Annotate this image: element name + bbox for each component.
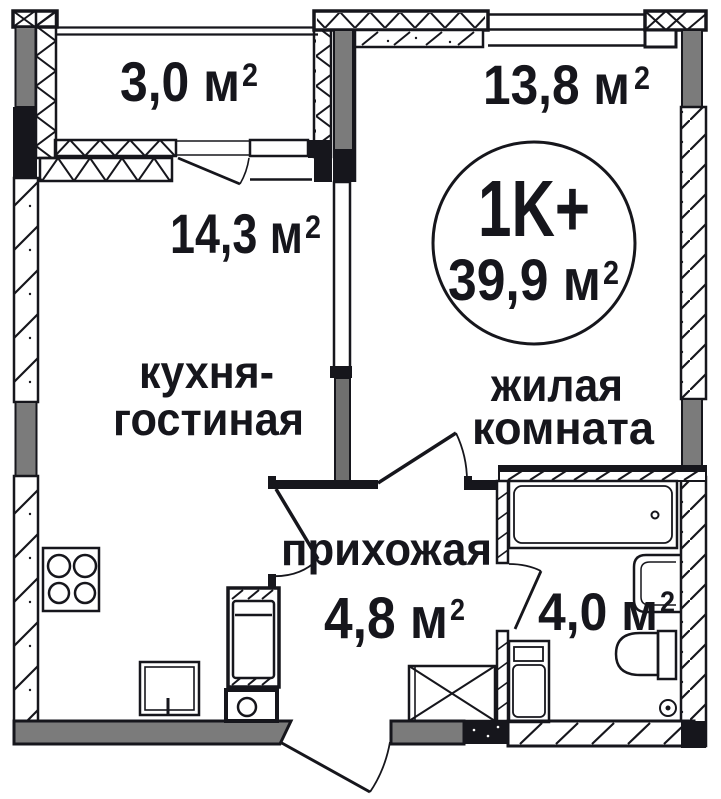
svg-text:13,8 м: 13,8 м [483, 53, 630, 116]
svg-text:4,0 м: 4,0 м [538, 583, 658, 642]
svg-text:2: 2 [660, 586, 675, 619]
svg-text:39,9 м: 39,9 м [448, 248, 601, 313]
svg-text:2: 2 [634, 60, 650, 96]
svg-text:2: 2 [242, 57, 258, 93]
svg-text:2: 2 [305, 209, 321, 245]
svg-text:3,0 м: 3,0 м [120, 50, 240, 113]
svg-text:2: 2 [450, 592, 465, 627]
svg-text:14,3 м: 14,3 м [170, 202, 303, 265]
svg-text:гостиная: гостиная [113, 393, 304, 445]
svg-text:прихожая: прихожая [281, 523, 492, 575]
svg-text:2: 2 [603, 254, 619, 291]
svg-text:кухня-: кухня- [139, 346, 274, 398]
svg-text:4,8 м: 4,8 м [324, 586, 448, 651]
svg-text:1K+: 1K+ [478, 164, 590, 253]
svg-text:комната: комната [472, 402, 654, 454]
